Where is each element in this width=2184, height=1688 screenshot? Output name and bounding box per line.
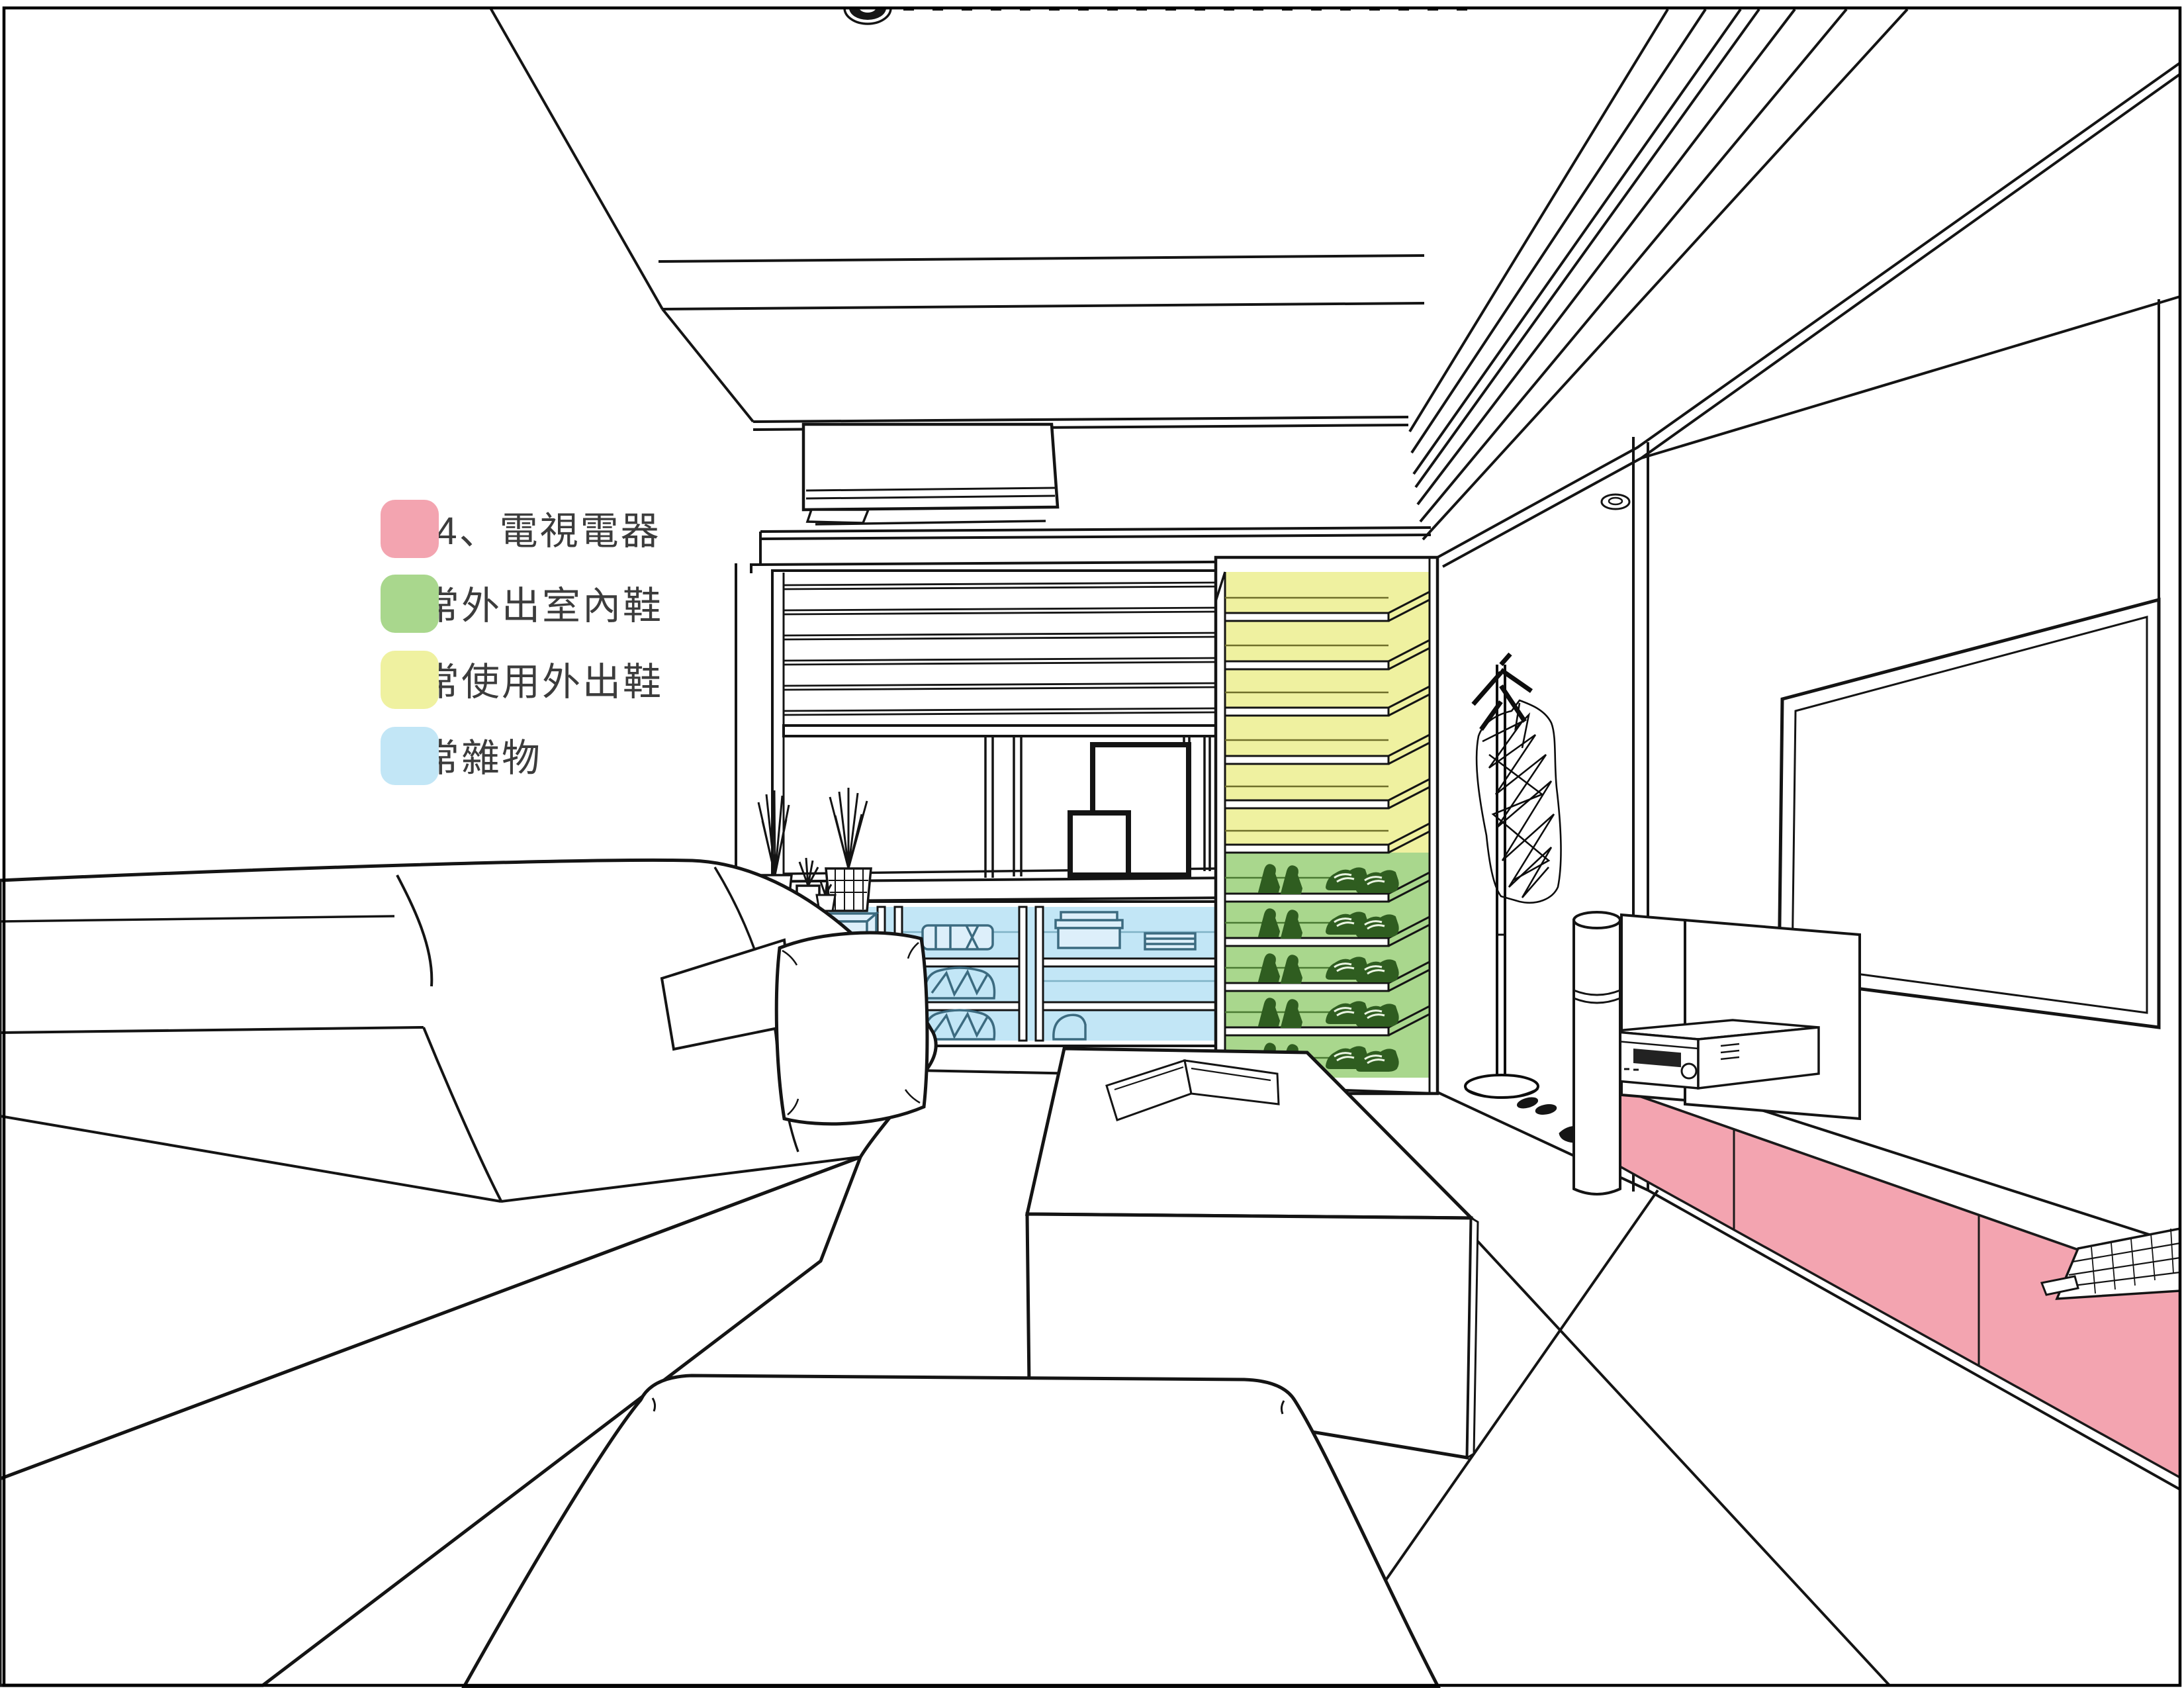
right-wall-top-edge [1641,297,2180,458]
ceiling-lamp-icon [844,2,891,24]
jacket-scribble [1477,700,1561,903]
interior-perspective-drawing: PS4、電視電器 日常外出室內鞋 不常使用外出鞋 日常雜物 [0,0,2184,1688]
blind-bottom-rail [784,726,1221,736]
picture-frame-small [1070,813,1128,875]
ac-vent-flap [807,510,868,523]
cylinder-speaker [1574,912,1620,1194]
shoe-cabinet [1216,557,1437,1094]
coat-rack [1465,654,1561,1098]
ceiling-downlight-icon [1602,494,1629,509]
av-receiver [1610,1020,1819,1088]
coat-rack-hooks [1473,654,1531,729]
storage-case [923,925,993,949]
air-conditioner [803,424,1058,524]
line-drawing-canvas [0,0,2184,1688]
ceiling-corner-diagonal [490,8,662,309]
folded-towels [1145,933,1195,949]
console-side-towers [1621,915,1860,1119]
stacked-boxes [1056,920,1122,928]
pillow-front [776,933,927,1124]
